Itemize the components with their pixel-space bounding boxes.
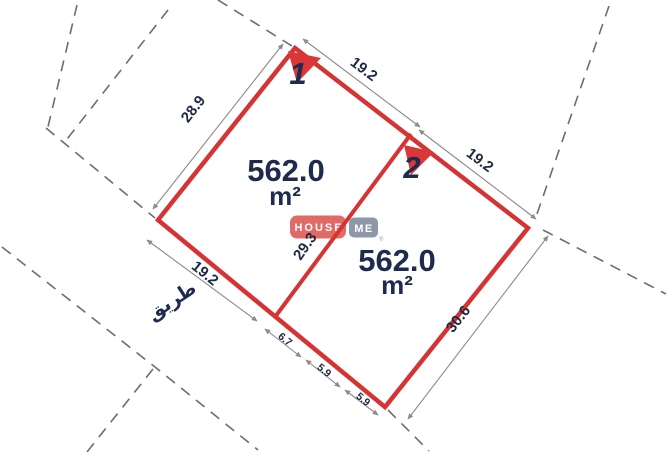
plot-1-number: 1 xyxy=(289,56,306,91)
dashed-boundary-topleft-b xyxy=(64,10,168,143)
plot-plan-canvas: 28.9 19.2 19.2 19.2 6.7 5.9 5.9 30.6 طري… xyxy=(0,0,668,452)
logo-registered-icon: ® xyxy=(379,236,384,243)
dimension-label-6-7: 6.7 xyxy=(275,330,294,349)
logo-me-text: ME xyxy=(354,223,374,235)
plot-1-area-unit: m² xyxy=(269,181,301,211)
dimension-label-19-2-plot1-top: 19.2 xyxy=(347,54,381,85)
dashed-extension-top-edge xyxy=(218,0,292,46)
dimension-label-28-9: 28.9 xyxy=(178,92,209,125)
dashed-boundary-right xyxy=(537,6,609,214)
dashed-extension-bottom-edge xyxy=(388,410,429,451)
dashed-boundary-topleft-a xyxy=(47,5,77,131)
plot-plan-svg: 28.9 19.2 19.2 19.2 6.7 5.9 5.9 30.6 طري… xyxy=(0,0,668,452)
dashed-extension-right-edge xyxy=(543,230,666,294)
road-name-label: طريق xyxy=(144,278,201,325)
dimension-label-19-2-plot2-top: 19.2 xyxy=(463,145,497,176)
plot-2-area-unit: m² xyxy=(381,270,413,300)
dashed-boundary-bottomleft xyxy=(87,369,153,452)
dashed-extension-left-edge xyxy=(46,128,155,218)
plot-2-number: 2 xyxy=(402,150,420,185)
